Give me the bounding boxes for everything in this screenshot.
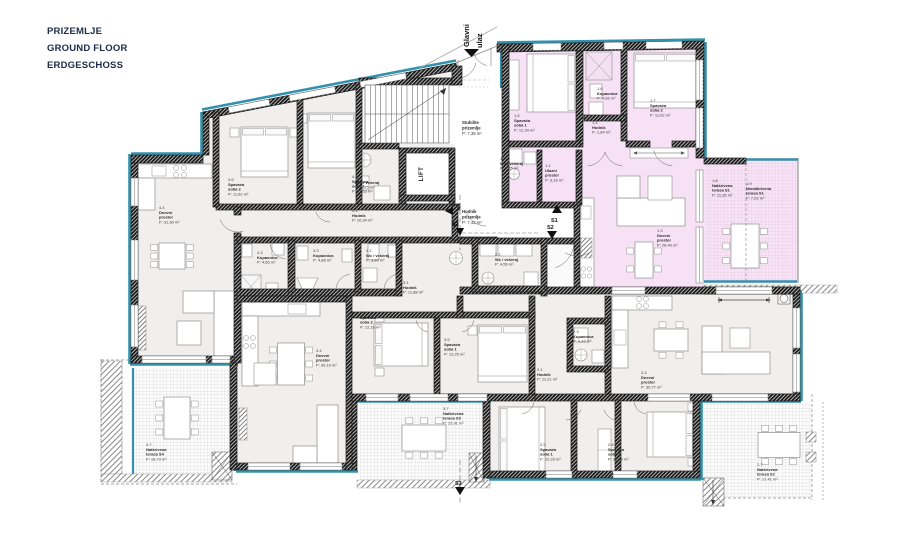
svg-text:Stubište: Stubište: [462, 120, 480, 125]
svg-text:P: 30,77 m²: P: 30,77 m²: [641, 384, 662, 389]
svg-text:P: 12,23 m²: P: 12,23 m²: [540, 456, 561, 461]
svg-text:GROUND FLOOR: GROUND FLOOR: [47, 43, 128, 54]
svg-text:S3: S3: [452, 222, 459, 228]
svg-text:P: 4,65 m²: P: 4,65 m²: [257, 260, 276, 265]
svg-text:P: 13,25 m²: P: 13,25 m²: [444, 351, 465, 356]
svg-text:prizemlje: prizemlje: [462, 126, 481, 131]
svg-text:P: 7,62 m²: P: 7,62 m²: [746, 195, 765, 200]
svg-text:P: 30,19 m²: P: 30,19 m²: [316, 362, 337, 367]
svg-text:P: 4,56 m²: P: 4,56 m²: [495, 262, 514, 267]
svg-text:ERDGESCHOSS: ERDGESCHOSS: [47, 60, 123, 71]
svg-text:LIFT: LIFT: [419, 167, 425, 182]
svg-text:P: 31,69 m²: P: 31,69 m²: [159, 219, 180, 224]
svg-text:P: 10,34 m²: P: 10,34 m²: [352, 218, 373, 223]
svg-text:P: 12,58 m²: P: 12,58 m²: [608, 456, 629, 461]
svg-text:P: 4,66 m²: P: 4,66 m²: [597, 96, 616, 101]
svg-text:P: 15,91 m²: P: 15,91 m²: [443, 420, 464, 425]
svg-text:Glavni: Glavni: [462, 24, 471, 47]
svg-text:P: 12,34 m²: P: 12,34 m²: [514, 127, 535, 132]
svg-text:P: 16,73 m²: P: 16,73 m²: [146, 456, 167, 461]
svg-text:P: 28,40 m²: P: 28,40 m²: [657, 242, 678, 247]
svg-text:Hodnik: Hodnik: [462, 209, 477, 214]
svg-text:PRIZEMLJE: PRIZEMLJE: [47, 26, 102, 37]
svg-text:P: 4,46 m²: P: 4,46 m²: [573, 339, 592, 344]
svg-text:P: 12,16 m²: P: 12,16 m²: [360, 324, 381, 329]
svg-text:P: 11,88 m²: P: 11,88 m²: [403, 290, 424, 295]
svg-text:P: 7,42 m²: P: 7,42 m²: [462, 220, 482, 225]
svg-text:P: 3,16 m²: P: 3,16 m²: [545, 177, 564, 182]
svg-text:P: 4,25 m²: P: 4,25 m²: [356, 185, 375, 190]
svg-text:ulaz: ulaz: [475, 33, 484, 48]
svg-text:prizemlje: prizemlje: [462, 215, 481, 220]
svg-text:S3: S3: [455, 481, 462, 487]
svg-text:P: 1,75 m²: P: 1,75 m²: [500, 166, 519, 171]
svg-text:P: 11,36 m²: P: 11,36 m²: [712, 192, 733, 197]
svg-text:P: 11,62 m²: P: 11,62 m²: [228, 191, 249, 196]
svg-text:P: 3,80 m²: P: 3,80 m²: [366, 258, 385, 263]
svg-text:P: 1,84 m²: P: 1,84 m²: [592, 130, 611, 135]
svg-text:P: 7,38 m²: P: 7,38 m²: [462, 131, 482, 136]
svg-text:P: 11,02 m²: P: 11,02 m²: [650, 112, 671, 117]
svg-text:P: 11,21 m²: P: 11,21 m²: [537, 377, 558, 382]
svg-text:P: 4,88 m²: P: 4,88 m²: [313, 258, 332, 263]
svg-text:P: 17,41 m²: P: 17,41 m²: [757, 476, 778, 481]
svg-text:S1: S1: [551, 218, 558, 224]
svg-text:S2: S2: [547, 225, 554, 231]
